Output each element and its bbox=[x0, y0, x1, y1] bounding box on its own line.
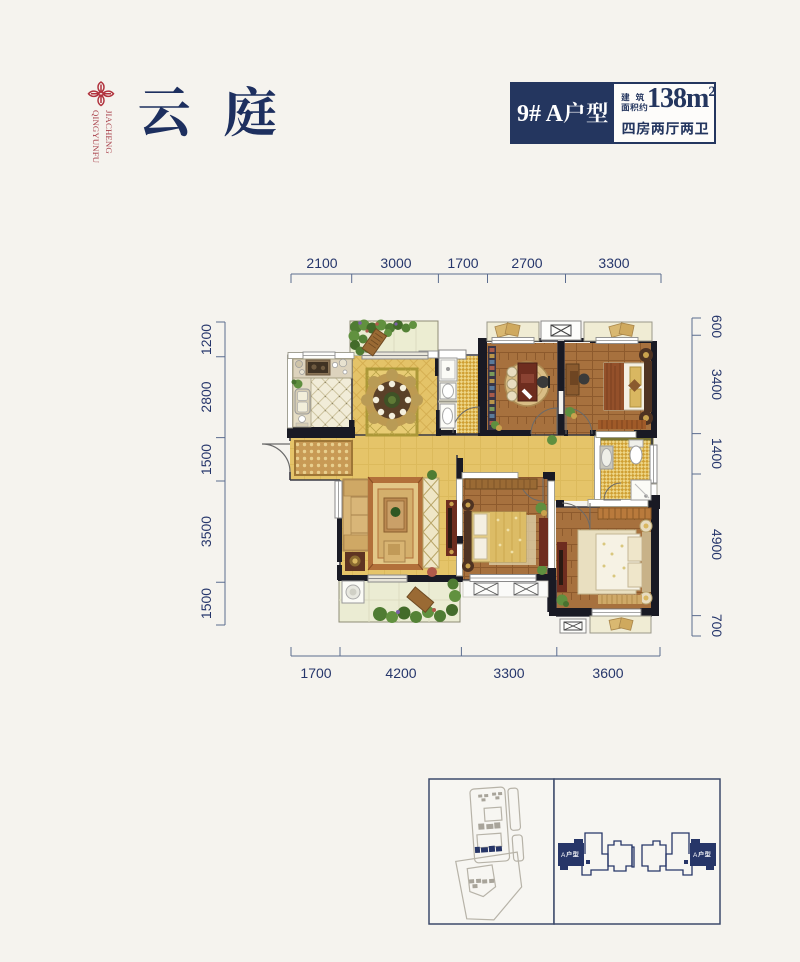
svg-text:3300: 3300 bbox=[598, 255, 629, 271]
svg-text:3300: 3300 bbox=[493, 665, 524, 681]
svg-text:1200: 1200 bbox=[198, 324, 214, 355]
svg-text:1500: 1500 bbox=[198, 444, 214, 475]
svg-text:A: A bbox=[561, 852, 566, 859]
svg-text:1400: 1400 bbox=[709, 438, 725, 469]
svg-text:1700: 1700 bbox=[300, 665, 331, 681]
svg-text:2800: 2800 bbox=[198, 381, 214, 412]
svg-text:2700: 2700 bbox=[511, 255, 542, 271]
svg-text:9# A: 9# A bbox=[517, 101, 564, 127]
svg-text:1700: 1700 bbox=[447, 255, 478, 271]
svg-text:3000: 3000 bbox=[380, 255, 411, 271]
svg-text:4900: 4900 bbox=[709, 529, 725, 560]
svg-text:600: 600 bbox=[709, 315, 725, 339]
svg-text:1500: 1500 bbox=[198, 588, 214, 619]
svg-text:3500: 3500 bbox=[198, 516, 214, 547]
svg-text:4200: 4200 bbox=[385, 665, 416, 681]
svg-text:3600: 3600 bbox=[592, 665, 623, 681]
svg-text:3400: 3400 bbox=[709, 369, 725, 400]
svg-text:700: 700 bbox=[709, 614, 725, 638]
svg-text:2100: 2100 bbox=[306, 255, 337, 271]
svg-text:A: A bbox=[693, 852, 698, 859]
